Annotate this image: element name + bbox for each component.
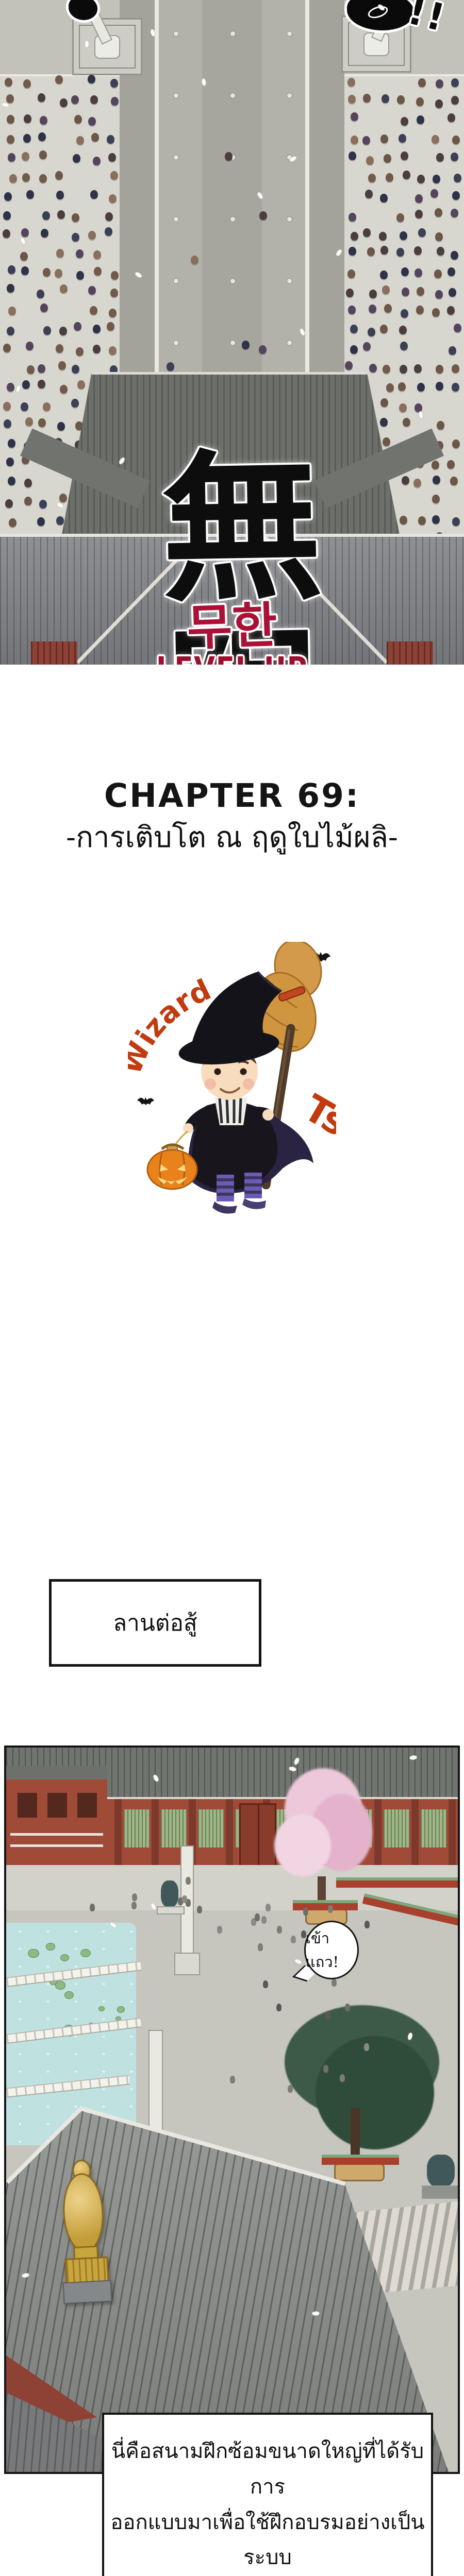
walkway-stud	[287, 216, 292, 222]
crowd-figure	[110, 289, 118, 297]
crowd-figure	[71, 95, 79, 104]
crowd-figure	[76, 271, 84, 280]
crowd-figure	[8, 153, 15, 162]
plaza-label-box: ลานต่อสู้	[49, 1579, 261, 1667]
crowd-figure	[43, 402, 51, 411]
narration-line: ออกแบบมาเพื่อใช้ฝึกอบรมอย่างเป็นระบบ	[104, 2505, 431, 2576]
walkway-stud	[230, 216, 236, 222]
left-pavilion	[6, 1766, 107, 1872]
panel-aerial-plaza: !! 無限 무한 LEVEL UP in 무림	[0, 0, 464, 665]
crowd-figure	[3, 402, 11, 411]
courtyard-figure	[328, 1905, 333, 1913]
crowd-figure	[21, 228, 29, 237]
crowd-figure	[346, 289, 354, 297]
crowd-figure	[22, 380, 30, 389]
wizard-shoe-right	[242, 1198, 266, 1209]
crowd-figure	[386, 383, 394, 392]
crowd-figure	[368, 174, 376, 182]
crowd-figure	[402, 476, 409, 485]
window-lattice	[161, 1809, 187, 1848]
gate-wall-top-edge	[92, 372, 367, 375]
crowd-figure	[39, 150, 47, 159]
crowd-figure	[59, 327, 67, 335]
lotus-leaf	[55, 1981, 66, 1990]
walkway-stud	[173, 278, 179, 284]
courtyard-figure	[332, 1979, 337, 1987]
window-lattice	[384, 1809, 409, 1848]
crowd-figure	[74, 322, 81, 331]
walkway-stud	[287, 93, 292, 98]
blush-left	[205, 1078, 216, 1090]
walkway-figure	[242, 341, 250, 349]
crowd-figure	[384, 154, 391, 163]
wizard-shoe-left	[212, 1201, 237, 1214]
chapter-heading: CHAPTER 69:	[0, 777, 464, 815]
crowd-figure	[22, 152, 29, 161]
crowd-figure	[8, 307, 16, 315]
crowd-figure	[73, 154, 80, 163]
crowd-figure	[447, 460, 455, 469]
crowd-figure	[21, 266, 29, 275]
courtyard-figure	[230, 2076, 235, 2083]
crowd-figure	[452, 383, 459, 392]
crowd-figure	[366, 156, 374, 165]
crowd-figure	[437, 421, 444, 430]
cherry-blossom-canopy	[274, 1815, 331, 1876]
crowd-figure	[417, 383, 425, 392]
hand-left	[183, 1123, 193, 1133]
pine-canopy	[316, 2036, 434, 2149]
crowd-figure	[109, 346, 117, 355]
crowd-figure	[23, 134, 31, 143]
crowd-figure	[55, 269, 62, 278]
walkway-figure	[225, 152, 233, 161]
crowd-figure	[41, 229, 48, 238]
crowd-figure	[59, 494, 67, 502]
crowd-figure	[401, 309, 408, 318]
crowd-figure	[448, 113, 455, 122]
corridor-column	[449, 1799, 456, 1865]
crowd-figure	[348, 95, 356, 104]
crowd-figure	[448, 267, 455, 276]
crowd-figure	[396, 248, 404, 257]
golden-roof-finial	[56, 2159, 112, 2315]
crowd-figure	[415, 194, 423, 203]
crowd-figure	[401, 151, 408, 160]
crowd-figure	[88, 117, 96, 126]
crowd-figure	[57, 422, 65, 431]
window-lattice	[198, 1809, 224, 1848]
courtyard-figure	[291, 1936, 296, 1943]
crowd-figure	[350, 345, 358, 354]
crowd-figure	[401, 117, 408, 126]
walkway-stud	[230, 278, 236, 284]
crowd-figure	[39, 500, 47, 509]
crowd-figure	[380, 134, 388, 143]
crowd-figure	[91, 133, 99, 142]
crowd-figure	[111, 97, 119, 106]
crowd-figure	[22, 173, 30, 182]
window-lattice	[124, 1809, 150, 1848]
crowd-figure	[433, 476, 440, 484]
crowd-figure	[432, 515, 440, 524]
crowd-figure	[88, 75, 95, 83]
crowd-figure	[379, 232, 387, 241]
pillar-base	[174, 1953, 200, 1975]
lotus-leaf	[80, 1949, 91, 1957]
courtyard-figure	[217, 1926, 222, 1934]
courtyard-figure	[345, 2004, 350, 2011]
narration-line: นี่คือสนามฝึกซ้อมขนาดใหญ่ที่ได้รับการ	[104, 2434, 431, 2505]
walkway-figure	[197, 1906, 202, 1913]
crowd-figure	[88, 286, 96, 295]
crowd-figure	[436, 382, 443, 391]
crowd-figure	[21, 402, 28, 411]
walkway-figure	[90, 1904, 95, 1911]
crowd-figure	[4, 192, 12, 201]
crowd-figure	[362, 136, 370, 145]
crowd-figure	[105, 227, 112, 236]
stone-monument-left	[72, 18, 142, 75]
crowd-figure	[416, 306, 424, 314]
walkway-stud	[287, 278, 292, 284]
crowd-figure	[38, 93, 45, 102]
crowd-figure	[397, 95, 405, 104]
crowd-figure	[436, 79, 443, 88]
crowd-figure	[451, 251, 458, 260]
crowd-figure	[56, 191, 64, 199]
speech-bubble: เข้าแถว!	[304, 1921, 359, 1979]
hand-right	[262, 1109, 274, 1121]
crowd-figure	[436, 365, 443, 374]
crowd-figure	[363, 342, 371, 351]
courtyard-figure	[261, 1916, 267, 1924]
crowd-figure	[435, 290, 443, 299]
courtyard-figure	[263, 1980, 268, 1988]
crowd-figure	[347, 269, 355, 278]
crowd-figure	[348, 306, 356, 314]
crowd-figure	[414, 364, 422, 373]
courtyard-figure	[325, 2011, 330, 2019]
crowd-figure	[3, 211, 11, 220]
crowd-figure	[60, 98, 68, 107]
lotus-leaf	[64, 1991, 74, 1999]
crowd-figure	[402, 287, 409, 296]
crowd-figure	[447, 306, 455, 315]
crowd-figure	[451, 152, 458, 161]
corridor-column	[226, 1799, 233, 1865]
series-title-levelup: LEVEL UP	[37, 650, 427, 665]
blush-right	[243, 1078, 254, 1090]
crowd-figure	[417, 175, 425, 183]
eye-left	[214, 1069, 221, 1075]
courtyard-figure	[255, 1913, 260, 1921]
crowd-figure	[94, 267, 102, 276]
crowd-figure	[42, 211, 50, 220]
corridor-column	[152, 1799, 159, 1865]
crowd-figure	[93, 157, 101, 165]
crowd-figure	[109, 194, 117, 203]
crowd-figure	[6, 457, 14, 466]
crowd-figure	[435, 232, 443, 241]
courtyard-figure	[266, 1904, 271, 1911]
temple-door	[239, 1803, 276, 1867]
crowd-figure	[57, 210, 65, 219]
crowd-figure	[76, 249, 84, 258]
crowd-figure	[400, 516, 407, 524]
speech-bubble-text: เข้าแถว!	[306, 1926, 357, 1974]
plaza-label-text: ลานต่อสู้	[113, 1605, 197, 1641]
crowd-figure	[437, 247, 444, 256]
crowd-figure	[72, 213, 79, 222]
crowd-figure	[27, 365, 35, 374]
crowd-figure	[418, 78, 426, 87]
walkway-stud	[230, 31, 236, 37]
crowd-figure	[38, 418, 46, 427]
crowd-figure	[55, 75, 63, 84]
crowd-figure	[93, 325, 101, 333]
window-lattice	[421, 1809, 446, 1848]
chapter-subtitle: -การเติบโต ณ ฤดูใบไม้ผลิ-	[0, 814, 464, 860]
crowd-figure	[350, 325, 358, 333]
crowd-figure	[384, 304, 392, 313]
crowd-figure	[349, 247, 356, 256]
courtyard-figure	[258, 1943, 263, 1951]
red-fence	[293, 1900, 358, 1910]
courtyard-figure	[276, 2004, 281, 2011]
lion-censer	[427, 2155, 455, 2188]
narration-box-1: นี่คือสนามฝึกซ้อมขนาดใหญ่ที่ได้รับการ ออ…	[102, 2413, 433, 2576]
crowd-figure	[380, 418, 388, 427]
crowd-figure	[380, 246, 388, 255]
crowd-figure	[369, 290, 377, 298]
crowd-figure	[72, 233, 79, 242]
crowd-figure	[452, 191, 460, 200]
crowd-figure	[452, 364, 459, 373]
crowd-figure	[7, 383, 14, 392]
crowd-figure	[93, 250, 101, 259]
bat-icon	[137, 1097, 154, 1105]
courtyard-figure	[288, 2085, 293, 2093]
red-fence	[322, 2155, 399, 2165]
crowd-figure	[25, 417, 33, 426]
wizard-ts-mascot: Wizard Ts	[128, 942, 336, 1223]
walkway-stud	[173, 340, 179, 346]
crowd-figure	[434, 269, 442, 278]
crowd-figure	[369, 364, 377, 372]
credit-suffix: Ts	[297, 1086, 337, 1145]
crowd-figure	[386, 173, 393, 182]
crowd-figure	[399, 403, 407, 412]
crowd-figure	[26, 190, 34, 199]
crowd-figure	[454, 174, 461, 182]
crowd-figure	[90, 95, 98, 104]
crowd-figure	[76, 347, 84, 356]
crowd-figure	[110, 171, 118, 180]
crowd-figure	[380, 194, 388, 202]
crowd-figure	[400, 342, 408, 350]
crowd-figure	[349, 213, 356, 222]
courtyard-figure	[364, 1921, 370, 1928]
crowd-figure	[414, 246, 422, 255]
crowd-figure	[37, 517, 45, 526]
crowd-figure	[451, 96, 459, 105]
courtyard-figure	[364, 2043, 369, 2051]
crowd-figure	[433, 175, 440, 183]
crowd-figure	[418, 228, 426, 237]
crowd-figure	[351, 135, 358, 144]
walkway-stud	[173, 93, 179, 98]
walkway-figure	[186, 1877, 191, 1885]
crowd-figure	[413, 479, 421, 487]
crowd-figure	[20, 252, 28, 261]
walkway-stud	[173, 31, 179, 37]
corridor-column	[374, 1799, 382, 1865]
crowd-figure	[111, 271, 119, 280]
crowd-figure	[39, 174, 47, 183]
crowd-figure	[345, 361, 353, 370]
crowd-figure	[76, 136, 84, 145]
courtyard-figure	[323, 2065, 328, 2073]
crowd-figure	[415, 268, 422, 277]
crowd-figure	[43, 268, 51, 277]
crowd-figure	[382, 94, 389, 103]
crowd-figure	[432, 135, 439, 144]
walkway-stud	[173, 216, 179, 222]
crowd-figure	[58, 361, 66, 370]
crowd-figure	[451, 78, 459, 87]
crowd-figure	[435, 99, 443, 108]
censer-base	[157, 1906, 185, 1914]
courtyard-figure	[277, 1926, 282, 1934]
crowd-figure	[367, 247, 375, 256]
crowd-figure	[38, 364, 45, 373]
crowd-figure	[24, 497, 32, 505]
crowd-figure	[7, 327, 14, 335]
crowd-figure	[24, 479, 32, 487]
crowd-figure	[449, 346, 456, 355]
crowd-figure	[60, 385, 68, 394]
walkway-figure	[182, 1895, 187, 1903]
walkway-figure	[132, 1893, 137, 1901]
crowd-figure	[108, 153, 116, 162]
bronze-censer	[161, 1880, 178, 1907]
corridor-column	[411, 1799, 419, 1865]
crowd-figure	[436, 153, 444, 162]
crowd-figure	[452, 517, 460, 526]
walkway-figure	[131, 1902, 137, 1909]
walkway-stud	[230, 340, 236, 346]
walkway-figure	[191, 256, 198, 264]
crowd-figure	[6, 94, 14, 103]
petal	[294, 1958, 303, 1964]
courtyard-figure	[340, 2074, 345, 2082]
crowd-figure	[93, 345, 101, 353]
crowd-figure	[56, 516, 64, 525]
walkway-figure	[259, 345, 267, 354]
crowd-figure	[435, 208, 442, 217]
lion-pedestal	[422, 2185, 460, 2199]
crowd-figure	[107, 135, 114, 144]
walkway-stud	[230, 93, 236, 98]
crowd-figure	[110, 79, 118, 88]
crowd-figure	[4, 419, 11, 428]
walkway-stud	[287, 31, 292, 37]
crowd-figure	[369, 304, 376, 313]
crowd-figure	[417, 115, 424, 124]
crowd-figure	[9, 518, 16, 527]
crowd-figure	[399, 134, 406, 143]
crowd-figure	[396, 213, 404, 222]
lotus-leaf	[28, 1949, 39, 1958]
crowd-figure	[380, 270, 388, 279]
crowd-figure	[400, 365, 407, 374]
crowd-figure	[418, 516, 426, 525]
crowd-figure	[449, 288, 456, 297]
crowd-figure	[452, 135, 460, 144]
crowd-figure	[105, 212, 113, 221]
crowd-figure	[380, 325, 388, 333]
crowd-figure	[432, 308, 440, 317]
crowd-figure	[60, 284, 68, 293]
crowd-figure	[107, 322, 114, 331]
crowd-figure	[403, 171, 410, 179]
crowd-figure	[5, 78, 12, 87]
crowd-figure	[403, 418, 410, 427]
crowd-figure	[430, 189, 438, 198]
red-fence	[336, 1877, 460, 1888]
crowd-figure	[90, 190, 98, 199]
walkway-figure	[167, 362, 174, 371]
crowd-figure	[40, 116, 47, 125]
courtyard-figure	[303, 1908, 308, 1916]
corridor-column	[114, 1799, 122, 1865]
crowd-figure	[38, 380, 45, 388]
webtoon-page: !! 無限 무한 LEVEL UP in 무림 CHAPTER 69: -การ…	[0, 0, 464, 2576]
crowd-figure	[415, 210, 423, 218]
crowd-figure	[416, 97, 424, 106]
crowd-figure	[7, 284, 14, 293]
crowd-figure	[7, 115, 14, 124]
pine-planter	[334, 2163, 385, 2181]
crowd-figure	[8, 439, 15, 448]
crowd-figure	[349, 151, 356, 160]
crowd-figure	[363, 94, 371, 103]
crowd-figure	[432, 495, 440, 503]
crowd-figure	[5, 499, 13, 508]
eye-right	[240, 1069, 247, 1075]
crowd-figure	[56, 249, 64, 258]
panel-training-courtyard: เข้าแถว!	[4, 1745, 460, 2474]
walkway-stud	[287, 340, 292, 346]
crowd-figure	[382, 285, 390, 294]
crowd-figure	[3, 344, 11, 352]
crowd-figure	[3, 229, 10, 238]
crowd-figure	[400, 231, 407, 240]
crowd-figure	[109, 309, 117, 317]
crowd-figure	[43, 326, 51, 335]
crowd-figure	[368, 328, 375, 336]
crowd-figure	[8, 265, 15, 274]
walkway-stud	[173, 155, 179, 160]
crowd-figure	[55, 171, 63, 180]
crowd-figure	[450, 477, 458, 485]
